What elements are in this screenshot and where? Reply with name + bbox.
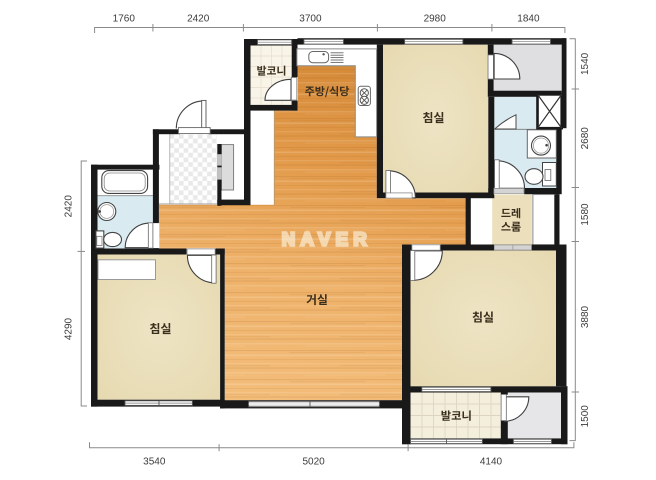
svg-text:2420: 2420 [64, 195, 75, 218]
svg-text:2420: 2420 [187, 14, 210, 25]
svg-text:1500: 1500 [580, 405, 591, 428]
svg-text:1840: 1840 [517, 14, 540, 25]
svg-text:3880: 3880 [580, 305, 591, 328]
svg-text:3540: 3540 [143, 457, 166, 468]
svg-text:1540: 1540 [580, 52, 591, 75]
svg-text:2680: 2680 [580, 127, 591, 150]
svg-text:2980: 2980 [424, 14, 447, 25]
svg-text:1580: 1580 [580, 203, 591, 226]
svg-text:NAVER: NAVER [282, 228, 372, 249]
svg-text:4290: 4290 [64, 317, 75, 340]
svg-text:3700: 3700 [299, 14, 322, 25]
svg-text:5020: 5020 [302, 457, 325, 468]
svg-text:4140: 4140 [480, 457, 503, 468]
svg-text:1760: 1760 [113, 14, 136, 25]
